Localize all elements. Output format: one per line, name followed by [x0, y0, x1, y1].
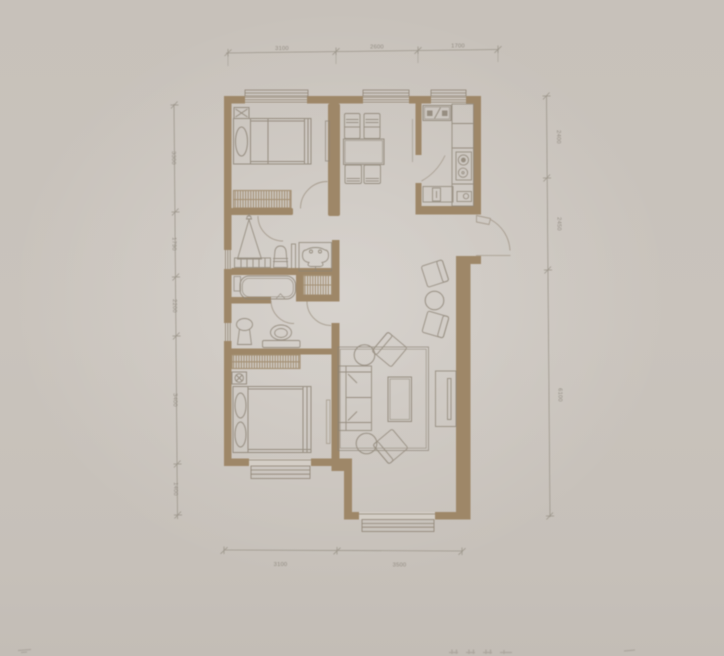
- svg-text:1400: 1400: [172, 482, 178, 496]
- svg-text:3300: 3300: [170, 151, 176, 165]
- svg-text:2600: 2600: [370, 45, 384, 51]
- svg-text:2400: 2400: [555, 130, 561, 144]
- svg-text:2200: 2200: [171, 299, 177, 313]
- svg-text:2450: 2450: [556, 217, 562, 231]
- svg-text:3500: 3500: [393, 563, 407, 569]
- svg-text:1700: 1700: [451, 44, 465, 50]
- svg-text:3100: 3100: [275, 46, 289, 52]
- svg-text:3100: 3100: [274, 562, 288, 568]
- svg-text:1790: 1790: [171, 237, 177, 251]
- svg-text:3400: 3400: [172, 393, 178, 407]
- svg-text:6100: 6100: [557, 388, 563, 402]
